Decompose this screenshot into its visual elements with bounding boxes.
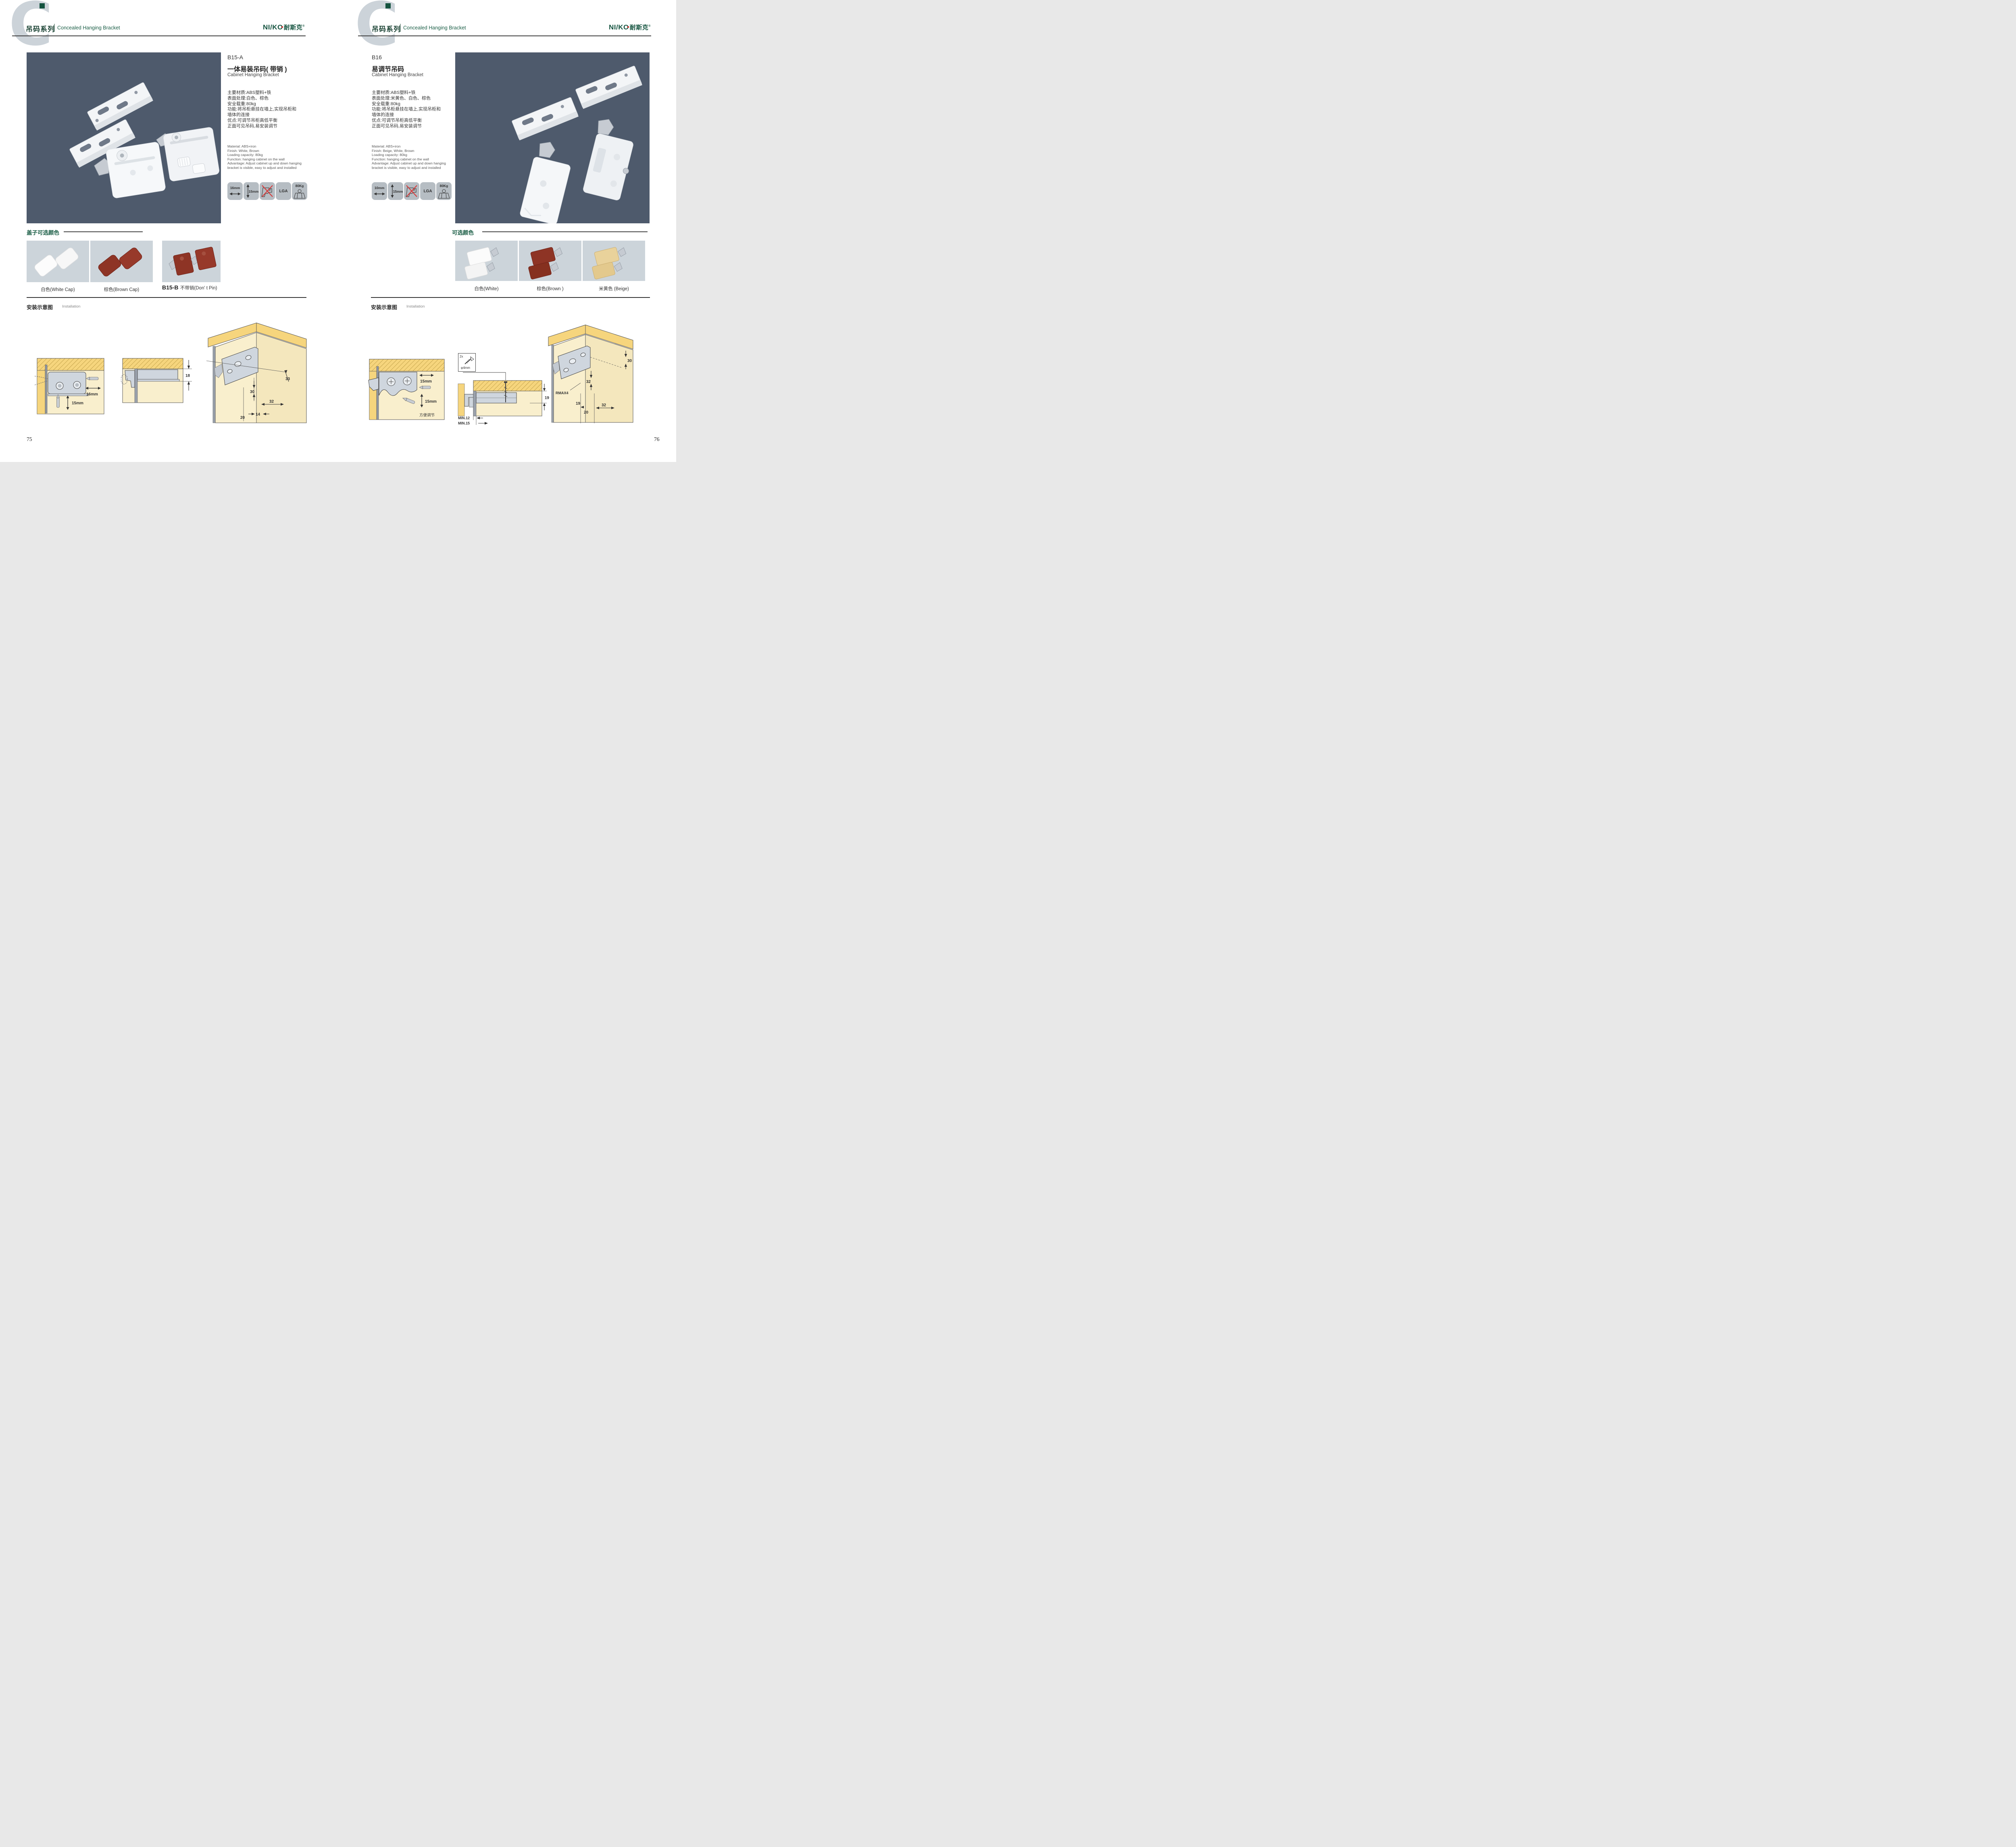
install-title-en: Installation xyxy=(406,304,425,309)
dim-label: 15mm xyxy=(420,379,432,384)
spec-line: 墙体的连接 xyxy=(372,112,441,118)
product-name-cn: 易调节吊码 xyxy=(372,64,404,73)
spec-line: Function: hanging cabinet on the wall xyxy=(372,157,446,162)
spec-line: Material: ABS+iron xyxy=(372,144,446,149)
spec-line: 正面可见吊码,易安装调节 xyxy=(372,124,441,129)
diagram-note: 方便调节 xyxy=(419,413,435,418)
dim-label: 20 xyxy=(584,410,589,415)
icon-lga: LGA xyxy=(420,182,435,200)
load-icon xyxy=(437,189,451,199)
install-title-cn: 安装示意图 xyxy=(371,303,397,311)
icon-load-capacity: 80Kg xyxy=(436,182,452,200)
horizontal-arrow-icon xyxy=(374,192,385,196)
icon-width-range: 10mm xyxy=(372,182,387,200)
brand-dot-icon xyxy=(627,26,629,28)
swatch-caption: 米黄色 (Beige) xyxy=(583,285,645,292)
product-name-en: Cabinet Hanging Bracket xyxy=(372,73,423,77)
specs-cn: 主要材质:ABS塑料+铁 表面处理:米黄色、白色、棕色 安全载重:80kg 功能… xyxy=(372,90,441,129)
spec-line: 主要材质:ABS塑料+铁 xyxy=(372,90,441,96)
spec-line: 安全载重:80kg xyxy=(372,102,441,107)
install-diagram-isometric: 30 32 RMAX4 19 20 32 xyxy=(547,322,635,425)
brand-cn: 耐斯克 xyxy=(630,24,649,31)
page-number: 76 xyxy=(654,436,660,443)
swatch-beige xyxy=(583,241,645,281)
dim-label: 32 xyxy=(586,380,591,384)
install-diagram-section: 15mm 15mm 方便调节 xyxy=(368,357,447,421)
series-mark-square xyxy=(385,3,391,8)
brand-latin: NI/KO xyxy=(609,23,629,31)
specs-en: Material: ABS+iron Finish: Beige, White,… xyxy=(372,144,446,170)
icon-no-drill xyxy=(404,182,419,200)
spec-line: Loading capacity: 80kg xyxy=(372,153,446,157)
dim-label: MIN.12 xyxy=(458,416,470,420)
section-rule xyxy=(371,297,650,298)
header-rule xyxy=(358,35,651,36)
swatch-caption: 棕色(Brown ) xyxy=(519,285,581,292)
product-code: B16 xyxy=(372,54,382,60)
spec-line: 表面处理:米黄色、白色、棕色 xyxy=(372,96,441,102)
icon-width-label: 10mm xyxy=(372,186,387,190)
colors-rule xyxy=(482,231,648,232)
screw-callout-box: 2x φ4mm xyxy=(458,353,476,372)
swatch-brown xyxy=(519,241,581,281)
no-drill-icon xyxy=(406,185,418,198)
dim-label: MIN.15 xyxy=(458,421,470,425)
icon-height-label: 15mm xyxy=(390,189,406,193)
dim-label: 19 xyxy=(576,401,581,406)
icon-load-label: 80Kg xyxy=(436,184,452,188)
spec-line: 优点:可调节吊柜高低平衡 xyxy=(372,118,441,124)
screw-diameter: φ4mm xyxy=(461,366,470,370)
spec-line: bracket is visible, easy to adjust and i… xyxy=(372,166,446,170)
icon-height-range: 15mm xyxy=(388,182,403,200)
spec-line: Advantage: Adjust cabinet up and down ha… xyxy=(372,161,446,166)
spec-line: 功能:将吊柜悬挂在墙上,实现吊柜和 xyxy=(372,107,441,112)
dim-label: 30 xyxy=(627,359,632,363)
page-right: C 吊码系列 Concealed Hanging Bracket NI/KO耐斯… xyxy=(0,0,676,462)
colors-title: 可选颜色 xyxy=(452,228,474,236)
dim-label: 15mm xyxy=(425,399,437,404)
install-diagram-side: 19 MIN.12 MIN.15 xyxy=(457,372,550,426)
product-photo-b16 xyxy=(455,52,650,223)
screw-icon xyxy=(463,355,475,365)
dim-label: 32 xyxy=(602,403,606,408)
registered-mark: ® xyxy=(648,25,651,27)
series-subtitle: Concealed Hanging Bracket xyxy=(403,25,466,31)
swatch-white xyxy=(455,241,518,281)
dim-label: RMAX4 xyxy=(556,391,569,395)
catalog-spread: C 吊码系列 Concealed Hanging Bracket NI/KO耐斯… xyxy=(0,0,676,462)
header-divider xyxy=(400,24,401,32)
icon-lga-label: LGA xyxy=(420,189,435,193)
screw-count: 2x xyxy=(460,355,463,358)
spec-line: Finish: Beige, White, Brown xyxy=(372,149,446,153)
series-title: 吊码系列 xyxy=(372,23,401,33)
swatch-caption: 白色(White) xyxy=(455,285,518,292)
brand-logo: NI/KO耐斯克® xyxy=(609,23,651,31)
